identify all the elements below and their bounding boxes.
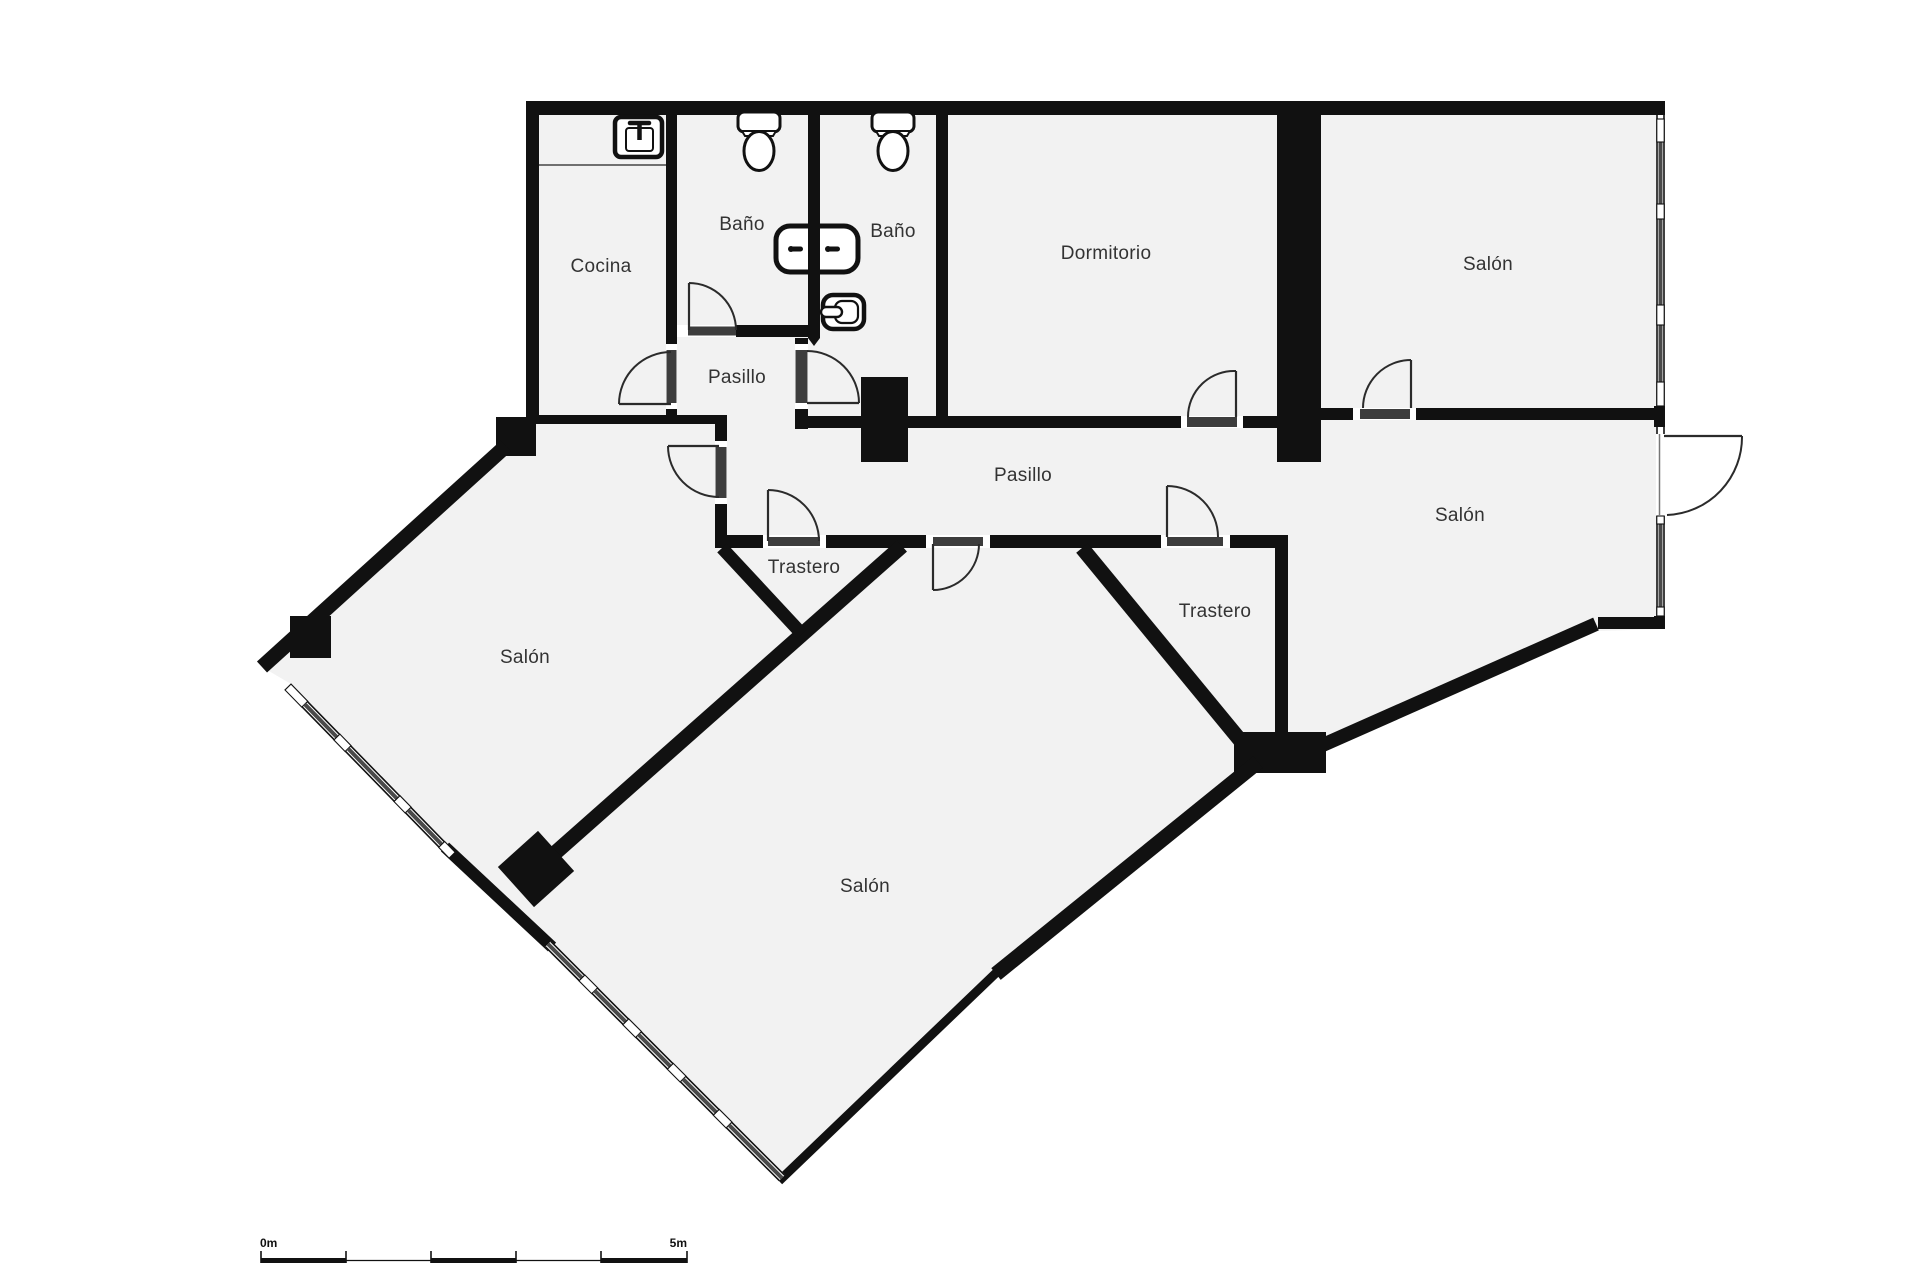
svg-text:Salón: Salón <box>1435 505 1485 526</box>
svg-text:0m: 0m <box>260 1236 277 1250</box>
svg-text:Salón: Salón <box>1463 254 1513 275</box>
svg-text:Trastero: Trastero <box>768 557 840 578</box>
svg-text:Dormitorio: Dormitorio <box>1061 243 1152 264</box>
svg-text:Salón: Salón <box>500 647 550 668</box>
svg-text:Trastero: Trastero <box>1179 601 1251 622</box>
svg-text:Pasillo: Pasillo <box>994 465 1052 486</box>
svg-text:Pasillo: Pasillo <box>708 367 766 388</box>
svg-text:Baño: Baño <box>870 221 916 242</box>
svg-text:Cocina: Cocina <box>571 256 632 277</box>
svg-text:Baño: Baño <box>719 214 765 235</box>
svg-text:5m: 5m <box>670 1236 687 1250</box>
svg-text:Salón: Salón <box>840 876 890 897</box>
